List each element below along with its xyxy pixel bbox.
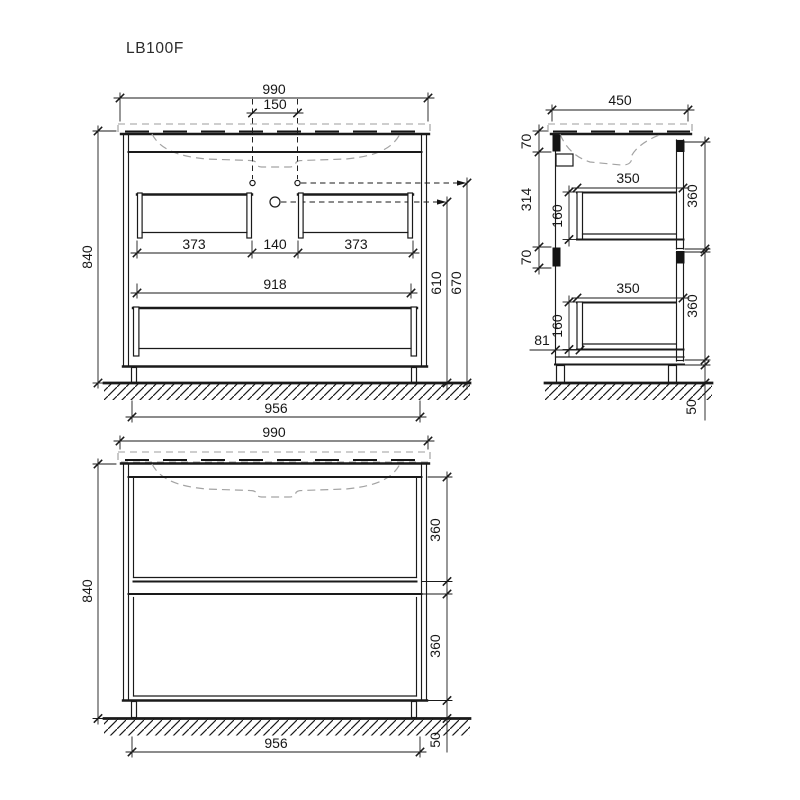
dim-box-height-bottom: 160 xyxy=(549,314,565,338)
dim-overall-width: 990 xyxy=(262,81,286,97)
left-leg xyxy=(132,368,137,383)
dim-gap: 140 xyxy=(263,236,287,252)
floor-hatch-side xyxy=(545,384,712,400)
dim-faucet-spacing: 150 xyxy=(263,96,287,112)
dim-height-closed: 840 xyxy=(79,579,95,603)
dim-front-bottom-closed: 360 xyxy=(427,634,443,658)
drawer-box-section-top xyxy=(577,192,684,240)
dim-overall-height: 840 xyxy=(79,245,95,269)
hinge-bottom xyxy=(676,251,685,264)
front-view-closed: 990 840 360 360 50 956 xyxy=(79,424,470,757)
drawer-box-section-bottom xyxy=(577,302,684,350)
drawing-sheet: LB100F xyxy=(0,0,800,800)
faucet-hole-right xyxy=(295,180,300,185)
dim-bottom-rail: 70 xyxy=(518,250,534,266)
floor-hatch-closed xyxy=(104,720,470,736)
dim-box-depth-bottom: 350 xyxy=(616,280,640,296)
washbasin-outline xyxy=(152,134,400,167)
floor-hatch xyxy=(104,384,470,400)
technical-drawing: LB100F xyxy=(0,0,800,800)
right-leg xyxy=(412,368,417,383)
side-view: 450 70 314 70 350 160 350 160 81 xyxy=(518,92,712,420)
dim-faucet-height: 670 xyxy=(448,271,464,295)
dim-plinth-closed: 50 xyxy=(427,732,443,748)
washbasin-outline-closed xyxy=(152,464,400,497)
front-view-open: 990 150 373 140 373 918 956 840 6 xyxy=(79,81,471,422)
dim-rail-gap: 314 xyxy=(518,188,534,212)
dim-box-height-top: 160 xyxy=(549,204,565,228)
drawer-box-lower xyxy=(133,307,417,356)
dim-back-offset: 81 xyxy=(534,332,550,348)
dim-width-closed: 990 xyxy=(262,424,286,440)
dim-front-bottom: 360 xyxy=(684,294,700,318)
dim-drain-height: 610 xyxy=(428,271,444,295)
side-leg-front xyxy=(669,366,677,383)
hinge-top xyxy=(676,141,685,153)
dim-base-width-closed: 956 xyxy=(264,735,288,751)
dim-drawer-left: 373 xyxy=(182,236,206,252)
wall-rail-bottom xyxy=(553,248,561,267)
dim-top-rail: 70 xyxy=(518,134,534,150)
dim-base-width: 956 xyxy=(264,400,288,416)
model-label: LB100F xyxy=(126,40,184,57)
washbasin-side-outline xyxy=(560,134,661,165)
dim-plinth-side: 50 xyxy=(683,399,699,415)
side-leg-back xyxy=(557,366,565,383)
bracket xyxy=(556,154,573,166)
drawer-box-upper-right xyxy=(298,193,413,238)
dim-box-depth-top: 350 xyxy=(616,170,640,186)
dim-depth: 450 xyxy=(608,92,632,108)
drain-hole xyxy=(270,197,280,207)
dim-inner-width: 918 xyxy=(263,276,287,292)
dim-front-top: 360 xyxy=(684,184,700,208)
drawer-box-upper-left xyxy=(137,193,252,238)
dim-front-top-closed: 360 xyxy=(427,518,443,542)
right-leg-closed xyxy=(412,702,417,718)
dim-drawer-right: 373 xyxy=(344,236,368,252)
wall-rail-top xyxy=(553,135,561,152)
faucet-hole-left xyxy=(250,180,255,185)
left-leg-closed xyxy=(132,702,137,718)
